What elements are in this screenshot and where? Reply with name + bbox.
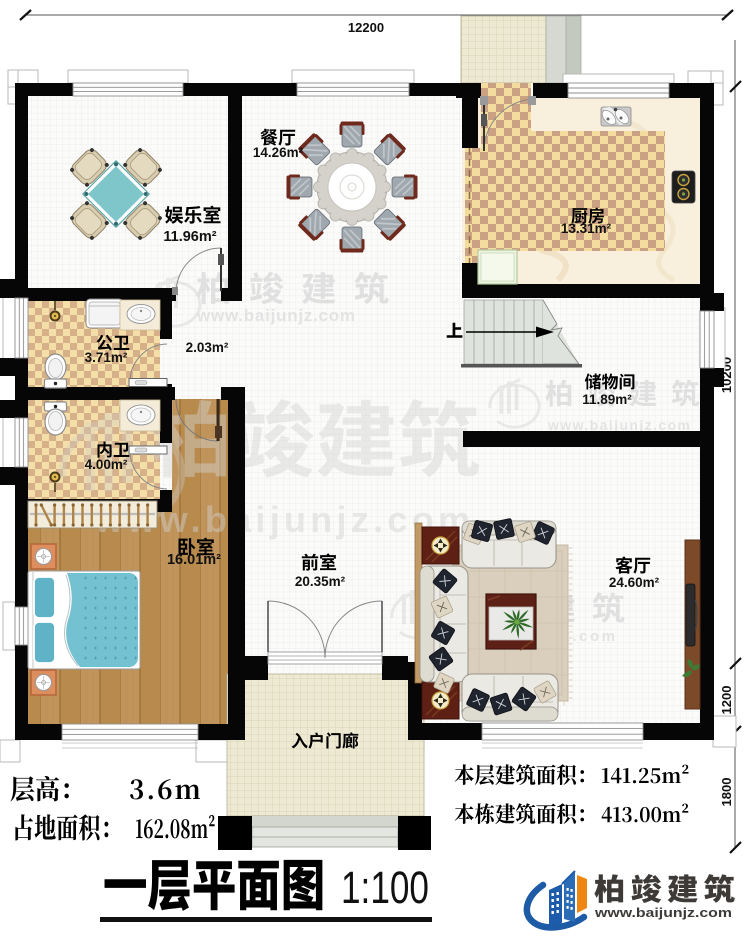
svg-text:13.31m²: 13.31m² — [561, 221, 612, 236]
svg-text:2.03m²: 2.03m² — [186, 340, 229, 355]
svg-text:11.96m²: 11.96m² — [163, 229, 216, 245]
svg-text:www.baijunjz.com: www.baijunjz.com — [594, 905, 732, 920]
svg-text:20.35m²: 20.35m² — [295, 574, 346, 589]
svg-text:1800: 1800 — [719, 778, 734, 807]
svg-text:1:100: 1:100 — [341, 862, 429, 913]
svg-text:24.60m²: 24.60m² — [609, 575, 660, 590]
svg-text:14.26m²: 14.26m² — [253, 145, 304, 160]
svg-text:www.baijunjz.com: www.baijunjz.com — [547, 417, 690, 433]
svg-text:www.baijunjz.com: www.baijunjz.com — [196, 306, 355, 325]
svg-text:12200: 12200 — [348, 20, 384, 35]
svg-text:16.01m²: 16.01m² — [167, 552, 221, 568]
svg-text:3.71m²: 3.71m² — [85, 350, 128, 365]
svg-text:4.00m²: 4.00m² — [85, 457, 128, 472]
svg-text:11.89m²: 11.89m² — [582, 392, 632, 407]
svg-text:1200: 1200 — [719, 686, 734, 715]
